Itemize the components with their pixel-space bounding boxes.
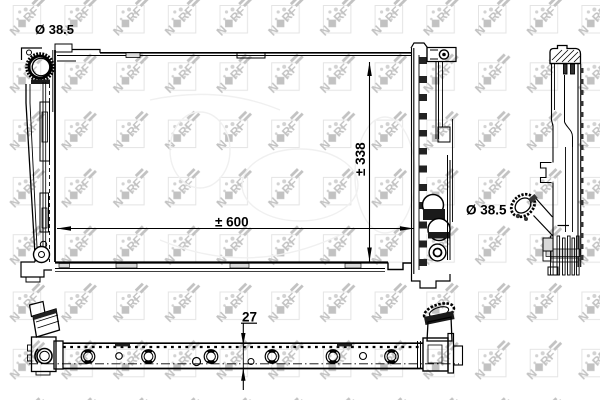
svg-text:Ø 38.5: Ø 38.5 <box>466 203 507 218</box>
svg-text:27: 27 <box>242 310 257 325</box>
svg-text:± 600: ± 600 <box>215 215 249 230</box>
svg-text:± 338: ± 338 <box>353 142 368 176</box>
svg-text:Ø 38.5: Ø 38.5 <box>35 22 74 37</box>
